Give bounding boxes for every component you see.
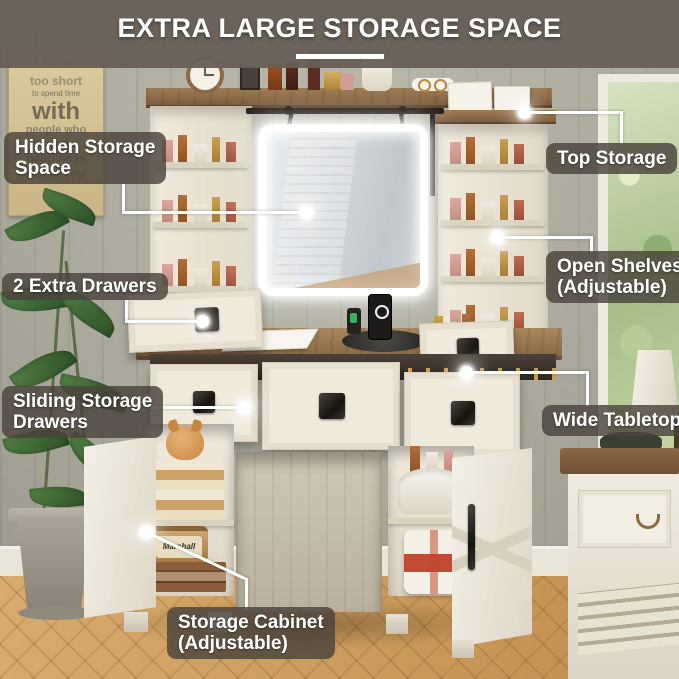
knee-space <box>236 452 382 612</box>
top-storage-box <box>447 81 492 113</box>
shelf-cosmetics <box>442 246 544 276</box>
phone <box>368 294 392 340</box>
callout-label-extra-drawers: 2 Extra Drawers <box>2 273 168 300</box>
callout-dot-hidden-storage <box>300 206 313 219</box>
shelf-cosmetics <box>442 134 544 164</box>
sign-line: too short <box>9 74 103 89</box>
cabinet-foot <box>124 612 148 632</box>
callout-dot-open-shelves <box>491 231 504 244</box>
product-infographic: Life is too short to spend time with peo… <box>0 0 679 679</box>
drawer-pull <box>193 391 215 413</box>
callout-dot-sliding-drawers <box>238 401 251 414</box>
label-line: Storage Cabinet <box>178 612 324 633</box>
shelf-board <box>154 162 248 168</box>
shelf-cosmetics <box>442 190 544 220</box>
shelf-cosmetics <box>154 132 248 162</box>
title-underline <box>296 54 384 59</box>
label-line: Drawers <box>13 412 152 433</box>
callout-dot-top-storage <box>518 106 531 119</box>
label-line: 2 Extra Drawers <box>13 276 157 297</box>
callout-line <box>122 211 308 214</box>
drawer-center <box>262 362 400 450</box>
right-cabinet-door <box>452 448 532 648</box>
callout-dot-wide-tabletop <box>460 366 473 379</box>
plush-dog <box>166 426 204 460</box>
cabinet-foot <box>386 614 408 634</box>
label-line: Space <box>15 158 155 179</box>
shelf-cosmetics <box>154 256 248 286</box>
drawer-pull <box>319 393 345 419</box>
sign-line: with <box>9 99 103 124</box>
folded-blankets <box>152 462 224 520</box>
callout-line <box>150 406 246 409</box>
right-shelf-tower <box>438 124 548 338</box>
callout-line <box>469 371 589 374</box>
led-mirror <box>258 124 428 296</box>
label-line: Top Storage <box>557 148 666 169</box>
callout-dot-storage-cabinet <box>140 526 153 539</box>
callout-line <box>122 184 125 214</box>
decor-pink-jar <box>340 74 354 90</box>
callout-line <box>245 578 248 610</box>
callout-label-wide-tabletop: Wide Tabletop <box>542 405 679 436</box>
callout-label-sliding-drawers: Sliding Storage Drawers <box>2 386 163 438</box>
label-line: (Adjustable) <box>178 633 324 654</box>
label-line: Open Shelves <box>557 256 679 277</box>
shelf-board <box>442 276 544 282</box>
shelf-cosmetics <box>154 192 248 222</box>
callout-line <box>527 111 623 114</box>
barn-door-rail <box>246 108 444 114</box>
page-title: EXTRA LARGE STORAGE SPACE <box>0 13 679 44</box>
door-roller <box>284 106 293 115</box>
callout-dot-extra-drawers <box>196 315 209 328</box>
shelf-board <box>442 164 544 170</box>
door-roller <box>398 106 407 115</box>
callout-line <box>500 236 593 239</box>
callout-label-hidden-storage: Hidden Storage Space <box>4 132 166 184</box>
cabinet-foot <box>452 640 474 658</box>
drawer-pull <box>451 401 475 425</box>
nightstand-slat-shelf <box>578 583 679 656</box>
label-line: (Adjustable) <box>557 277 679 298</box>
shelf-board <box>442 220 544 226</box>
label-line: Sliding Storage <box>13 391 152 412</box>
door-handle <box>468 504 475 570</box>
label-line: Hidden Storage <box>15 137 155 158</box>
callout-line <box>620 111 623 144</box>
decor-gold-jar <box>324 72 340 90</box>
shelf-board <box>154 222 248 228</box>
rail-bracket <box>430 112 435 196</box>
callout-label-storage-cabinet: Storage Cabinet (Adjustable) <box>167 607 335 659</box>
callout-line <box>125 320 203 323</box>
callout-line <box>586 371 589 407</box>
smartwatch <box>347 308 361 334</box>
book-stack <box>144 562 226 592</box>
nightstand-top <box>560 448 679 474</box>
plant-pot-saucer <box>18 606 94 620</box>
decor-frame <box>240 66 260 90</box>
callout-label-top-storage: Top Storage <box>546 143 677 174</box>
callout-label-open-shelves: Open Shelves (Adjustable) <box>546 251 679 303</box>
label-line: Wide Tabletop <box>553 410 679 431</box>
